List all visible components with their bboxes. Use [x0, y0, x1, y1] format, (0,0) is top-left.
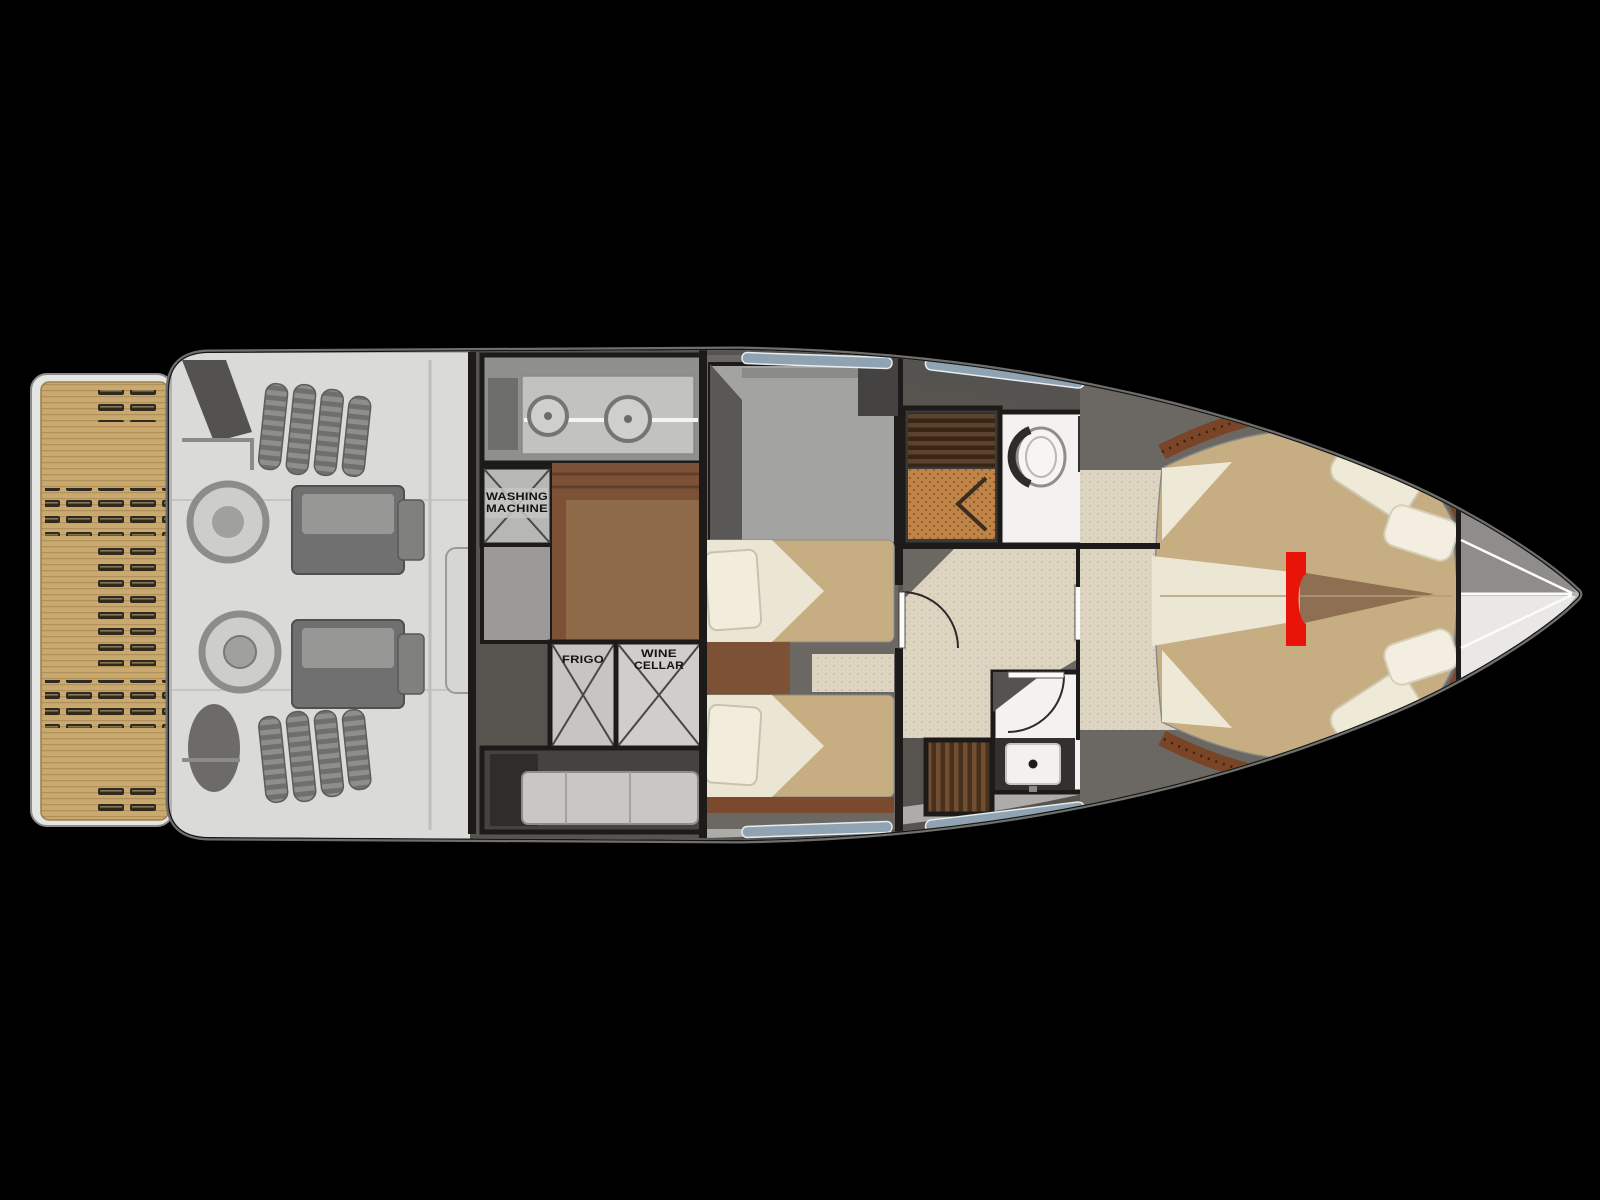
- engine-block-starboard: [292, 620, 424, 708]
- shower-stall: [903, 408, 1000, 545]
- master-bed: [1152, 430, 1461, 760]
- engine-block-port: [292, 486, 424, 574]
- laundry-closet: WASHING MACHINE: [482, 467, 552, 545]
- wall: [903, 543, 1160, 549]
- gearbox-port: [190, 484, 266, 560]
- technical-space-top: [482, 355, 702, 463]
- shower-bench: [908, 413, 995, 467]
- corridor: [552, 463, 702, 643]
- midship-bulkhead: [699, 350, 707, 838]
- floor-plan-canvas: WASHING MACHINE FRIGO WINE CELLAR: [0, 0, 1600, 1200]
- guest-bed-top: [704, 540, 894, 642]
- pillow: [704, 549, 761, 630]
- wine-cellar-label-line1: WINE: [641, 648, 677, 660]
- washing-machine-label-line1: WASHING: [486, 491, 548, 503]
- technical-space-bottom: [482, 748, 702, 832]
- guest-bed-bottom: [704, 695, 894, 797]
- sink-vanity: [995, 738, 1075, 792]
- master-cabin: [1080, 380, 1474, 810]
- guest-cabin: [704, 355, 898, 829]
- bed-frame-strip: [704, 797, 894, 813]
- wall: [895, 648, 903, 833]
- guest-door-leaf: [899, 592, 905, 648]
- swim-platform: [31, 374, 173, 826]
- frigo-cabinet: FRIGO: [550, 642, 616, 748]
- pillow: [704, 704, 761, 785]
- wine-cellar-cabinet: WINE CELLAR: [616, 642, 702, 748]
- cabinet: [482, 545, 552, 642]
- nightstand: [704, 642, 790, 695]
- wine-cellar-label-line2: CELLAR: [634, 660, 684, 672]
- toilet: [1012, 428, 1065, 486]
- carpet-runner: [812, 654, 894, 692]
- washing-machine-label-line2: MACHINE: [486, 503, 548, 515]
- gearbox-starboard: [202, 614, 278, 690]
- stern-gear: [188, 704, 240, 792]
- wardrobe-aft-starboard: [926, 740, 992, 814]
- door-leaf: [1008, 672, 1064, 678]
- frigo-label: FRIGO: [562, 654, 604, 666]
- yacht-deck-plan: WASHING MACHINE FRIGO WINE CELLAR: [0, 0, 1600, 1200]
- engine-room-bulkhead: [468, 352, 476, 834]
- foredeck: [1461, 470, 1576, 720]
